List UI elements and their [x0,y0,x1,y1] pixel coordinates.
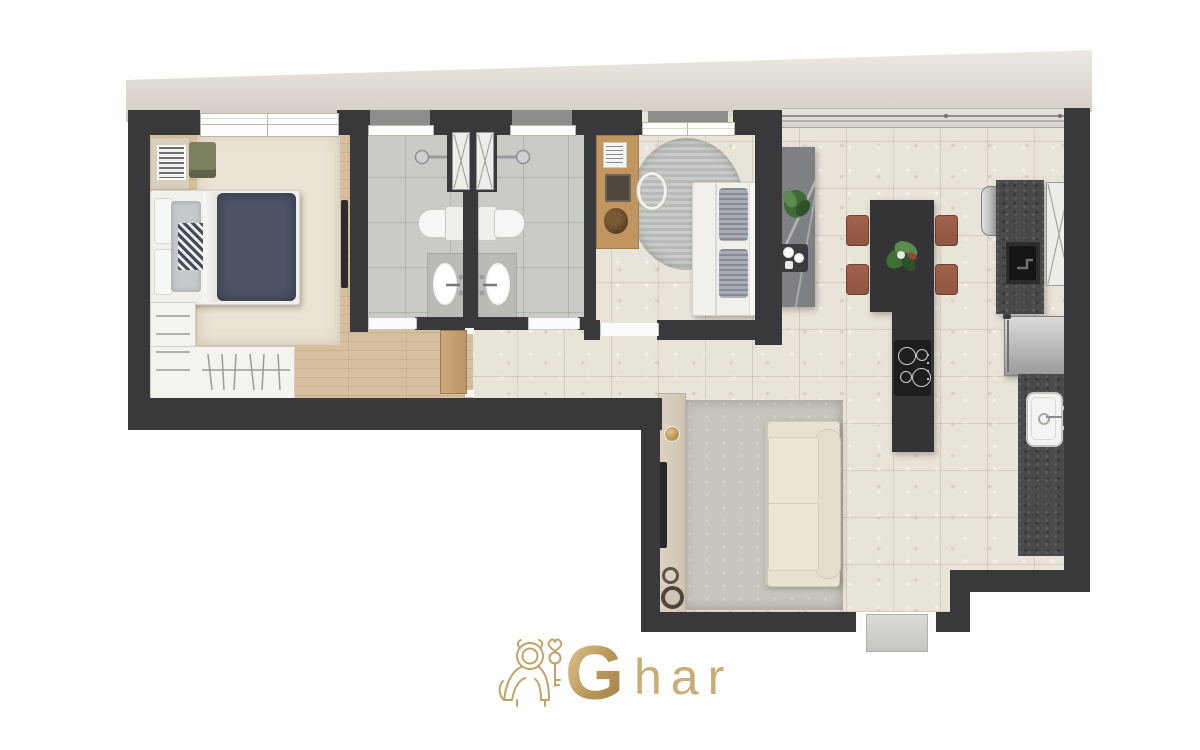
window-band-kitchen [782,108,1064,128]
television [659,462,667,548]
wall-bath2-bottom-a [478,317,528,330]
fridge-hinge [1003,314,1011,319]
kitchen-counter-upper [996,180,1044,314]
entry-door-jamb [929,612,936,632]
vanity-bath2 [478,253,517,321]
counter-sink-niche [1006,242,1040,284]
wall-bath2-east [584,110,596,340]
dresser-decor [157,145,186,180]
wall-bath-divider [463,190,478,330]
tray-item [785,261,793,269]
rail-stop [1058,114,1062,118]
sofa-seat-cushion [768,437,819,505]
kitchen-island [892,312,934,452]
faucet [479,271,499,301]
burner [900,371,912,383]
sofa-seat-cushion [768,503,819,571]
brand-name-text: har [634,652,733,702]
wall-left [128,110,150,430]
wall-kitchen-west [755,110,782,345]
wardrobe-hanger-rails [150,302,300,402]
console-vase [661,586,684,609]
brand-monogram: G [565,636,624,712]
wall-bottom-living-a [641,612,863,632]
entry-door-sill [866,614,928,652]
paper-lines [606,146,623,163]
desk [596,135,639,249]
master-dresser [150,137,190,190]
sink-drain [1038,413,1050,425]
second-bed [692,182,756,316]
vanity-bath1 [427,253,465,321]
brand-lion-icon [497,634,563,710]
wall-master-east [350,110,368,332]
dining-chair [846,264,869,295]
bedroom-bench [189,142,216,178]
duct-shaft [452,132,470,190]
cooktop-controls [927,354,929,384]
utility-sink [1026,392,1063,447]
shaft-x-mark [453,133,469,189]
bed-pillow-striped [719,188,748,241]
door-threshold-bedroom2 [600,323,659,336]
refrigerator [1004,316,1070,376]
dining-chair [935,215,958,246]
wall-right [1064,108,1090,592]
hall-door-leaf-open [440,330,467,394]
table-centerpiece-plant [878,232,926,280]
sink-faucet-line [1046,416,1062,418]
wall-top-4 [570,110,642,135]
window-mullion [643,128,734,129]
kitchen-counter-lower [1018,374,1068,556]
dining-table [870,200,934,312]
shower-head-bath1 [414,147,450,167]
cooktop [894,340,931,396]
window-shade-bath2 [512,110,572,125]
wall-living-west [641,398,660,632]
toilet-bowl [494,209,525,238]
sideboard-marble [778,147,815,307]
window-bath2 [510,125,576,136]
floorplan-canvas: G har [0,0,1200,750]
cup [783,247,794,258]
bedroom-sliding-door [341,200,348,288]
fridge-handle [1007,320,1009,372]
wall-bottom-left-wing [128,398,662,430]
window-shade-bath1 [370,110,430,125]
duct-shaft [476,132,494,190]
entry-door-jamb [856,612,863,632]
window-mullion [201,124,338,125]
dining-chair [935,264,958,295]
door-threshold-bath2 [528,318,580,329]
desk-papers [603,142,627,168]
console-vase [662,567,679,584]
window-rail [782,115,1064,117]
sink-faucet [1015,256,1035,270]
bed-pillow-striped [719,249,748,298]
window-second-bedroom [642,122,735,136]
toilet-bath2 [478,206,523,239]
shower-head-bath2 [495,147,531,167]
toilet-cistern [445,206,464,241]
bed-duvet-navy [217,193,296,301]
bed-fold-line [715,183,717,315]
rail-stop [944,114,948,118]
window-bath1 [368,125,434,136]
window-mullion [687,123,688,135]
window-master-bedroom [200,113,339,137]
window-rail [782,120,1064,122]
dining-chair [846,215,869,246]
master-bed [150,190,300,305]
faucet [444,271,464,301]
desk-keyboard [605,174,631,202]
window-shade-bed2 [648,111,728,122]
console-decor-gold [664,426,680,442]
serving-tray [780,244,808,272]
sofa [765,421,840,585]
cup [794,253,804,263]
tv-console [658,393,686,614]
plant [779,185,813,223]
wall-bed2-bottom-b [657,320,757,340]
door-threshold-bath1 [368,318,417,329]
shaft-x-mark [477,133,493,189]
desk-plant [604,208,628,234]
wall-bath1-bottom-b [415,317,463,330]
wall-bath1-bottom-a [360,317,368,330]
burner [898,347,916,365]
desk-chair [637,172,667,210]
window-mullion [201,118,338,119]
toilet-bath1 [418,206,462,239]
